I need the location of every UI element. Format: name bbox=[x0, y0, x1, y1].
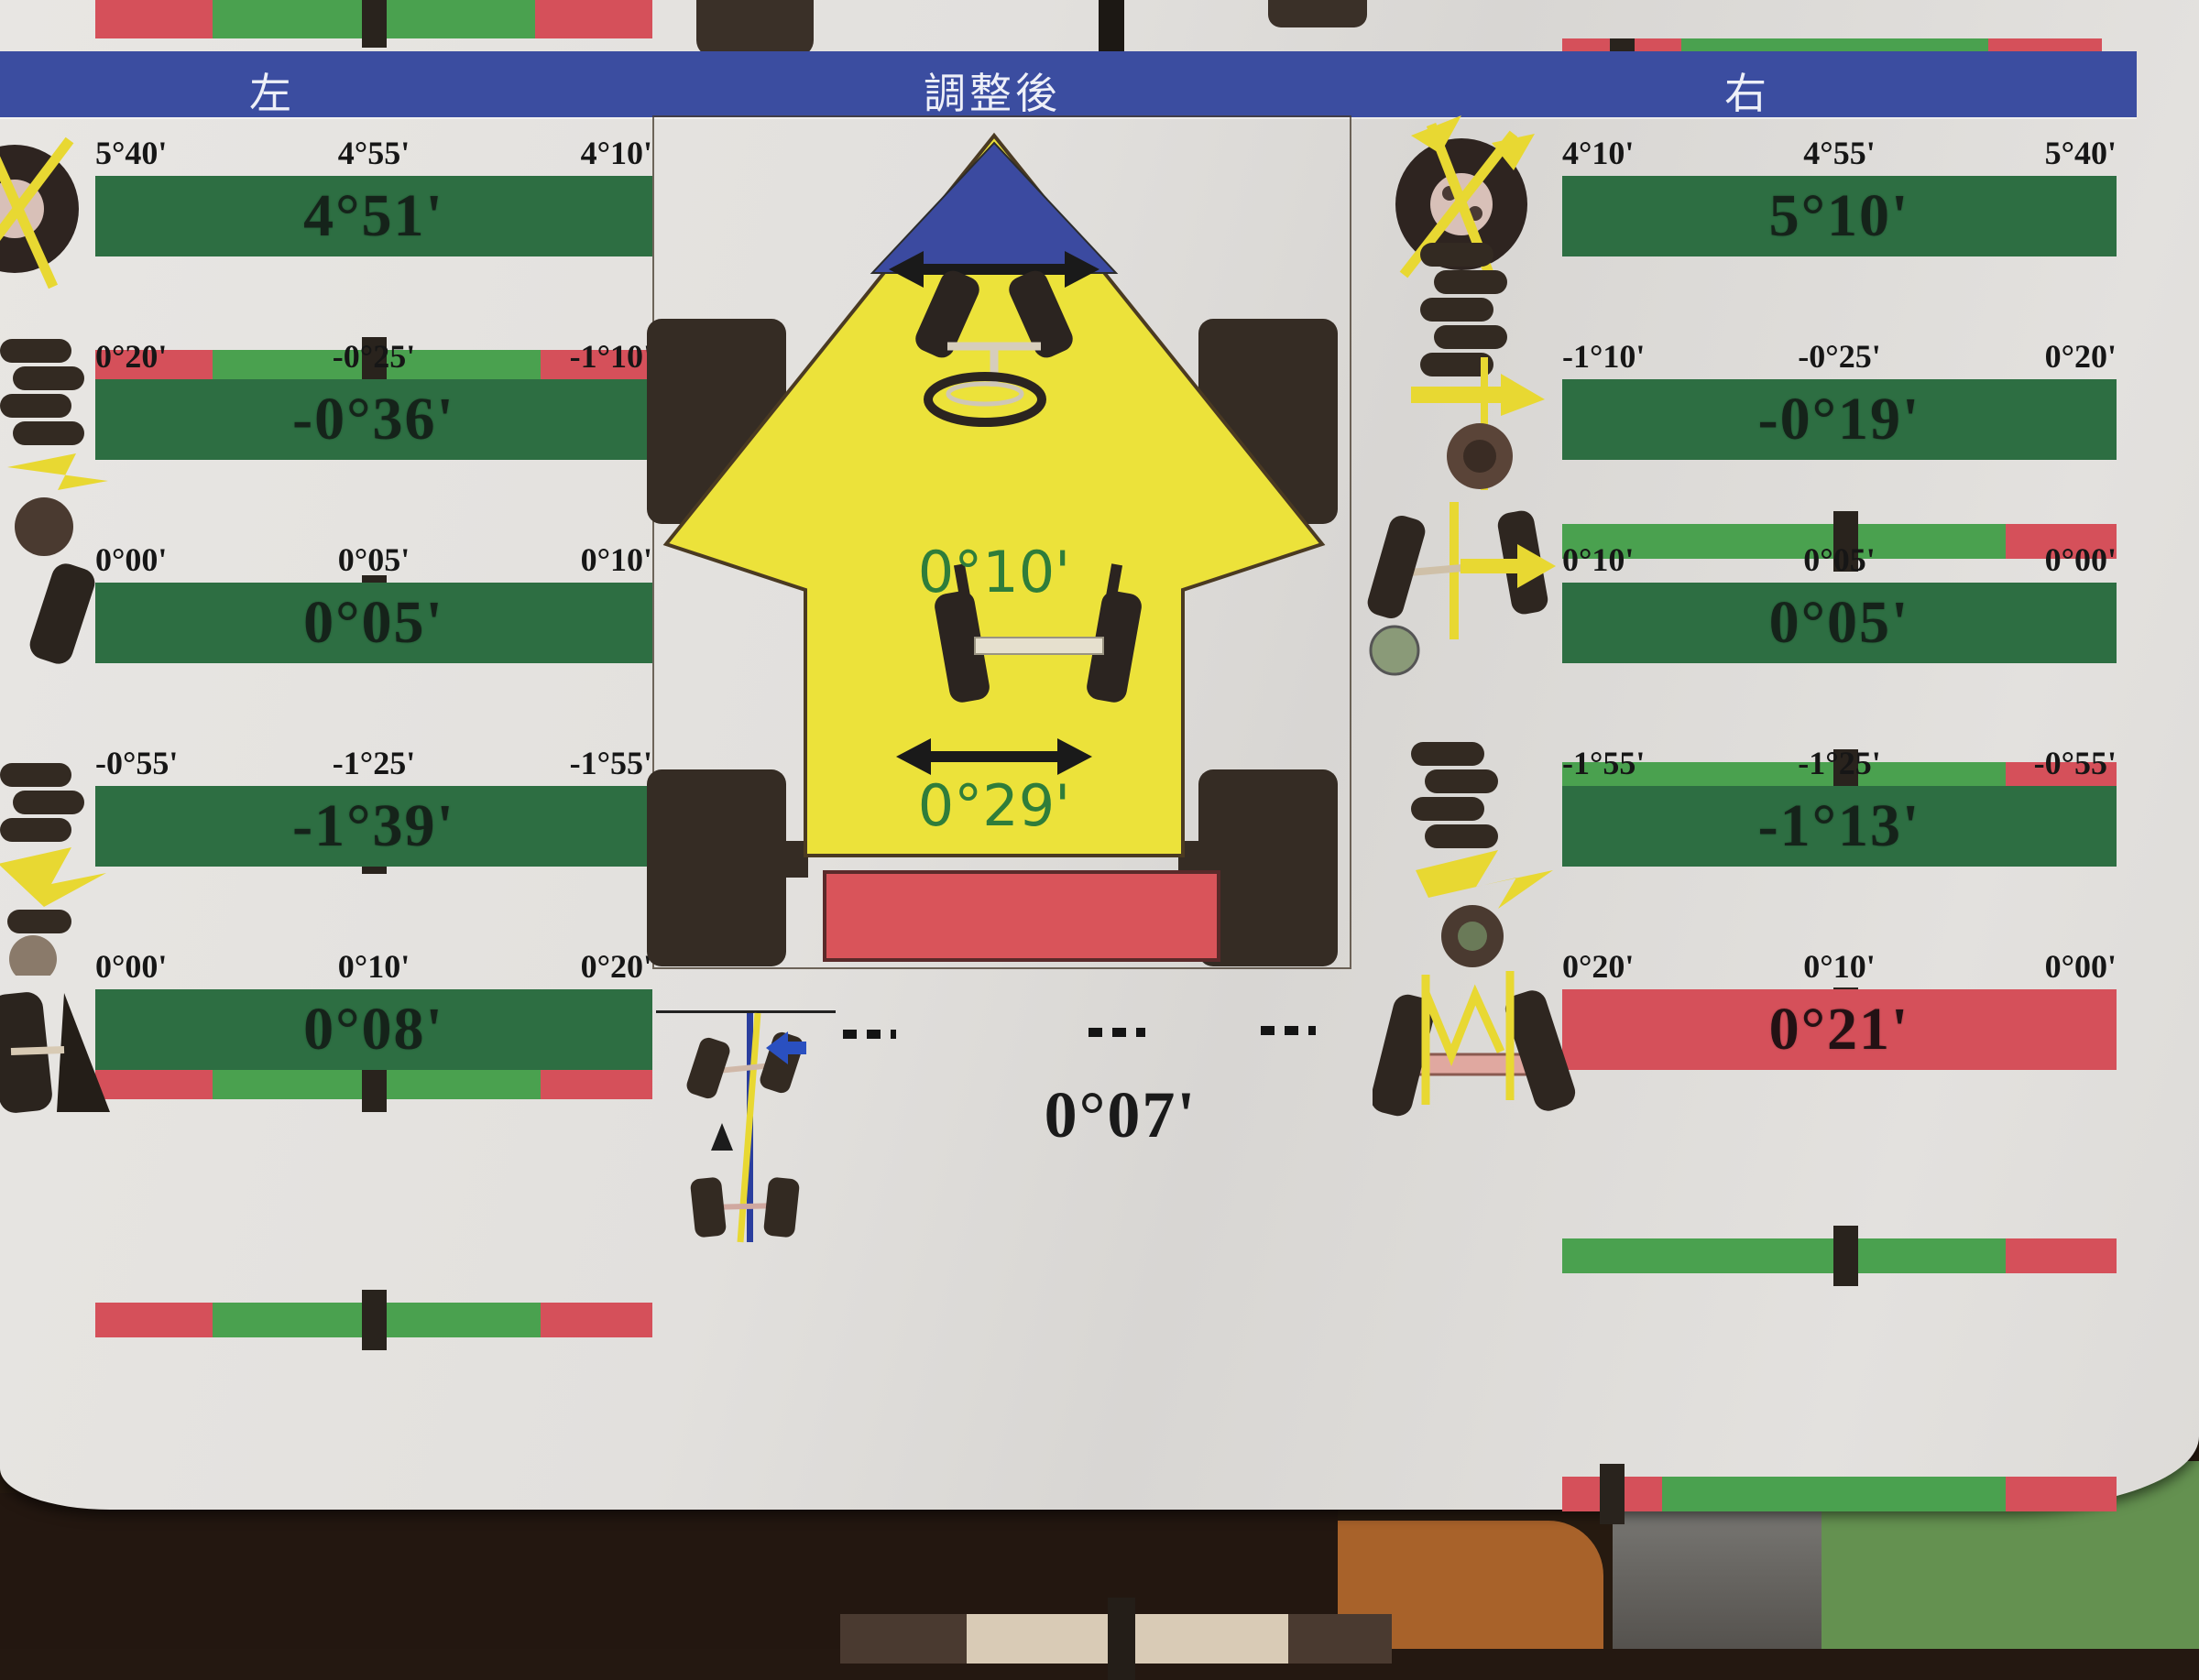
datum-dash bbox=[843, 1030, 896, 1039]
tick: -1°25' bbox=[333, 744, 415, 782]
left-front-toe-icon bbox=[24, 561, 125, 671]
left-front-camber-ticks: 5°40' 4°55' 4°10' bbox=[95, 134, 652, 172]
meter-marker bbox=[362, 1290, 387, 1350]
left-front-camber-value: 4°51' bbox=[303, 181, 444, 251]
tick: 0°20' bbox=[2045, 337, 2117, 376]
tick: 0°05' bbox=[1803, 540, 1875, 579]
right-rear-toe-ticks: 0°20' 0°10' 0°00' bbox=[1562, 947, 2117, 986]
rear-left-wheel bbox=[647, 769, 786, 966]
tick: -1°55' bbox=[1562, 744, 1645, 782]
meter-segment-red bbox=[535, 0, 652, 38]
tick: 0°00' bbox=[2045, 947, 2117, 986]
tick: 4°10' bbox=[1562, 134, 1634, 172]
left-rear-camber-ticks: -0°55' -1°25' -1°55' bbox=[95, 744, 652, 782]
tick: -0°55' bbox=[2034, 744, 2117, 782]
meter-marker bbox=[1600, 1464, 1625, 1524]
right-front-toe-value: 0°05' bbox=[1769, 588, 1910, 658]
left-front-caster-bar: -0°36' bbox=[95, 379, 652, 460]
thrust-bar-marker bbox=[1108, 1598, 1135, 1680]
rear-out-of-spec-block bbox=[825, 872, 1219, 960]
datum-dash bbox=[1261, 1026, 1316, 1035]
tick: 4°55' bbox=[338, 134, 410, 172]
rear-total-toe-value: 0°29' bbox=[903, 772, 1086, 839]
front-total-toe-value: 0°10' bbox=[903, 539, 1086, 605]
meter-marker bbox=[362, 0, 387, 48]
left-front-toe-ticks: 0°00' 0°05' 0°10' bbox=[95, 540, 652, 579]
left-front-toe-bar: 0°05' bbox=[95, 583, 652, 663]
header-left-label: 左 bbox=[249, 60, 295, 121]
left-rear-camber-bar: -1°39' bbox=[95, 786, 652, 867]
meter-segment-green bbox=[1662, 1477, 2006, 1511]
tick: -0°25' bbox=[1798, 337, 1880, 376]
thrust-bar-segment bbox=[840, 1614, 967, 1664]
meter-segment-red bbox=[95, 0, 213, 38]
header-right-label: 右 bbox=[1724, 60, 1770, 121]
tick: 0°05' bbox=[338, 540, 410, 579]
previous-car-wheel-left bbox=[696, 0, 814, 57]
left-rear-toe-bar: 0°08' bbox=[95, 989, 652, 1070]
tick: -1°10' bbox=[570, 337, 652, 376]
thrust-angle-bar bbox=[840, 1614, 1392, 1664]
left-front-camber-bar: 4°51' bbox=[95, 176, 652, 256]
right-rear-camber-meter bbox=[1562, 1238, 2117, 1273]
meter-segment-red bbox=[541, 1303, 652, 1337]
right-rear-camber-ticks: -1°55' -1°25' -0°55' bbox=[1562, 744, 2117, 782]
right-front-camber-value: 5°10' bbox=[1769, 181, 1910, 251]
left-front-toe-value: 0°05' bbox=[303, 588, 444, 658]
right-front-caster-icon bbox=[1393, 229, 1567, 495]
tick: 0°10' bbox=[1562, 540, 1634, 579]
header-band: 左 調整後 右 bbox=[0, 51, 2137, 117]
left-front-caster-ticks: 0°20' -0°25' -1°10' bbox=[95, 337, 652, 376]
right-front-camber-bar: 5°10' bbox=[1562, 176, 2117, 256]
left-rear-toe-ticks: 0°00' 0°10' 0°20' bbox=[95, 947, 652, 986]
right-front-toe-icon bbox=[1367, 502, 1564, 681]
tick: 0°10' bbox=[338, 947, 410, 986]
tick: -0°25' bbox=[333, 337, 415, 376]
right-rear-toe-value: 0°21' bbox=[1769, 995, 1910, 1064]
right-rear-toe-bar: 0°21' bbox=[1562, 989, 2117, 1070]
meter-segment-green bbox=[1562, 1238, 2006, 1273]
tick: 0°20' bbox=[581, 947, 652, 986]
previous-section-meter-left bbox=[95, 0, 652, 38]
right-front-caster-value: -0°19' bbox=[1758, 385, 1921, 454]
left-front-camber-icon bbox=[0, 108, 99, 310]
left-rear-camber-icon bbox=[0, 756, 126, 976]
tick: 5°40' bbox=[95, 134, 167, 172]
right-front-toe-bar: 0°05' bbox=[1562, 583, 2117, 663]
right-rear-camber-icon bbox=[1388, 733, 1567, 976]
meter-segment-red bbox=[2006, 1477, 2117, 1511]
left-rear-toe-icon bbox=[0, 976, 148, 1123]
tick: 0°10' bbox=[1803, 947, 1875, 986]
meter-segment-red bbox=[95, 1303, 213, 1337]
right-rear-camber-bar: -1°13' bbox=[1562, 786, 2117, 867]
right-front-toe-ticks: 0°10' 0°05' 0°00' bbox=[1562, 540, 2117, 579]
meter-segment-red bbox=[2006, 1238, 2117, 1273]
right-rear-toe-icon bbox=[1373, 967, 1579, 1155]
tick: 0°10' bbox=[581, 540, 652, 579]
tick: -1°55' bbox=[570, 744, 652, 782]
tick: -1°10' bbox=[1562, 337, 1645, 376]
thrust-angle-car-icon bbox=[685, 1013, 818, 1242]
left-front-caster-value: -0°36' bbox=[292, 385, 455, 454]
tick: 4°55' bbox=[1803, 134, 1875, 172]
right-front-caster-bar: -0°19' bbox=[1562, 379, 2117, 460]
windshield-triangle bbox=[872, 143, 1116, 273]
meter-marker bbox=[1833, 1226, 1858, 1286]
right-front-camber-ticks: 4°10' 4°55' 5°40' bbox=[1562, 134, 2117, 172]
tick: 0°00' bbox=[2045, 540, 2117, 579]
thrust-bar-segment bbox=[1288, 1614, 1392, 1664]
previous-car-wheel-right bbox=[1268, 0, 1367, 27]
left-rear-toe-meter bbox=[95, 1303, 652, 1337]
datum-dash bbox=[1089, 1028, 1145, 1037]
tick: 4°10' bbox=[581, 134, 652, 172]
right-rear-camber-value: -1°13' bbox=[1758, 791, 1921, 861]
right-rear-toe-meter bbox=[1562, 1477, 2117, 1511]
left-rear-camber-value: -1°39' bbox=[292, 791, 455, 861]
left-rear-toe-value: 0°08' bbox=[303, 995, 444, 1064]
tick: 5°40' bbox=[2045, 134, 2117, 172]
tick: -1°25' bbox=[1798, 744, 1880, 782]
header-center-label: 調整後 bbox=[924, 60, 1061, 121]
thrust-angle-value: 0°07' bbox=[1024, 1077, 1217, 1153]
left-front-caster-icon bbox=[0, 330, 126, 559]
right-front-caster-ticks: -1°10' -0°25' 0°20' bbox=[1562, 337, 2117, 376]
